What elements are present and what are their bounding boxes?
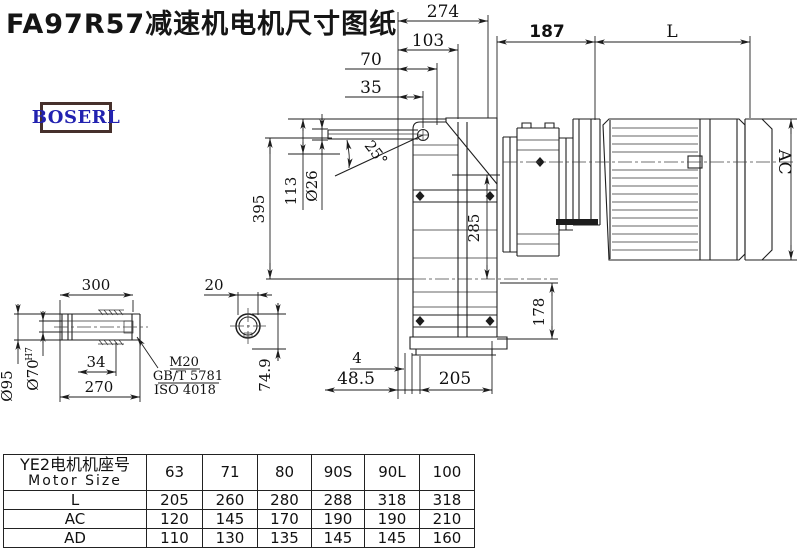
dimension-drawing: 274 103 70 35 187 L 395 113 Ø26 25° 28 — [0, 0, 800, 415]
cell-AC-80: 170 — [258, 510, 312, 529]
dim-274: 274 — [427, 2, 459, 22]
cell-AD-80: 135 — [258, 529, 312, 548]
dim-103: 103 — [412, 31, 444, 51]
dim-113: 113 — [282, 177, 300, 206]
cell-AC-71: 145 — [203, 510, 258, 529]
dim-AC: AC — [774, 148, 794, 174]
middle-dimensions: 285 178 — [465, 175, 552, 339]
dim-205: 205 — [439, 369, 471, 389]
dim-48-5: 48.5 — [337, 369, 375, 389]
gearbox-housing — [410, 118, 507, 355]
dim-70: 70 — [360, 50, 382, 70]
cell-L-100: 318 — [420, 491, 475, 510]
col-90S: 90S — [312, 455, 365, 491]
dim-35: 35 — [360, 78, 382, 98]
table-header-row: YE2电机机座号 Motor Size 63 71 80 90S 90L 100 — [4, 455, 475, 491]
cell-AC-90L: 190 — [365, 510, 420, 529]
dim-20: 20 — [204, 276, 223, 294]
cell-AD-71: 130 — [203, 529, 258, 548]
col-90L: 90L — [365, 455, 420, 491]
cell-AD-100: 160 — [420, 529, 475, 548]
dim-dia95: Ø95 — [0, 370, 16, 401]
dim-285: 285 — [465, 214, 483, 243]
dim-angle-25: 25° — [361, 137, 392, 169]
row-label-AD: AD — [4, 529, 147, 548]
cell-L-90S: 288 — [312, 491, 365, 510]
fan-cover — [745, 119, 772, 260]
col-71: 71 — [203, 455, 258, 491]
table-row-AD: AD 110 130 135 145 145 160 — [4, 529, 475, 548]
dim-395: 395 — [250, 195, 268, 224]
cell-L-90L: 318 — [365, 491, 420, 510]
extension-lines — [265, 12, 797, 399]
cell-L-80: 280 — [258, 491, 312, 510]
col-80: 80 — [258, 455, 312, 491]
header-cn: YE2电机机座号 — [4, 457, 146, 474]
col-63: 63 — [147, 455, 203, 491]
cell-AD-90L: 145 — [365, 529, 420, 548]
header-en: Motor Size — [4, 474, 146, 489]
cell-AC-90S: 190 — [312, 510, 365, 529]
standard-iso: ISO 4018 — [154, 383, 216, 398]
dim-dia70: Ø70 — [24, 359, 42, 390]
row-label-L: L — [4, 491, 147, 510]
dim-178: 178 — [530, 298, 548, 327]
shaft-detail: 300 Ø95 Ø70 H7 34 270 M20 GB/T 5781 ISO … — [0, 276, 223, 402]
page: FA97R57减速机电机尺寸图纸 BOSERL 274 — [0, 0, 800, 555]
motor-size-table: YE2电机机座号 Motor Size 63 71 80 90S 90L 100… — [3, 454, 475, 548]
top-dimensions: 274 103 70 35 187 L — [345, 2, 750, 98]
dim-dia26: Ø26 — [303, 170, 321, 201]
dim-300: 300 — [82, 276, 111, 294]
row-label-AC: AC — [4, 510, 147, 529]
dim-34: 34 — [86, 353, 105, 371]
cell-L-63: 205 — [147, 491, 203, 510]
cell-L-71: 260 — [203, 491, 258, 510]
dim-dia70-tolerance: H7 — [25, 347, 35, 361]
dim-74-9: 74.9 — [256, 358, 274, 391]
thread-callout: M20 — [169, 355, 199, 370]
coupling-adapter — [503, 119, 600, 256]
table-row-AC: AC 120 145 170 190 190 210 — [4, 510, 475, 529]
cell-AC-100: 210 — [420, 510, 475, 529]
col-100: 100 — [420, 455, 475, 491]
right-dimension-AC: AC — [774, 119, 794, 260]
dim-4: 4 — [352, 349, 362, 367]
dim-L: L — [666, 22, 677, 42]
dim-187: 187 — [529, 22, 565, 42]
cell-AD-63: 110 — [147, 529, 203, 548]
dim-270: 270 — [85, 378, 114, 396]
cell-AD-90S: 145 — [312, 529, 365, 548]
standard-gbt: GB/T 5781 — [153, 369, 223, 384]
cell-AC-63: 120 — [147, 510, 203, 529]
table-header-motor-size: YE2电机机座号 Motor Size — [4, 455, 147, 491]
table-row-L: L 205 260 280 288 318 318 — [4, 491, 475, 510]
